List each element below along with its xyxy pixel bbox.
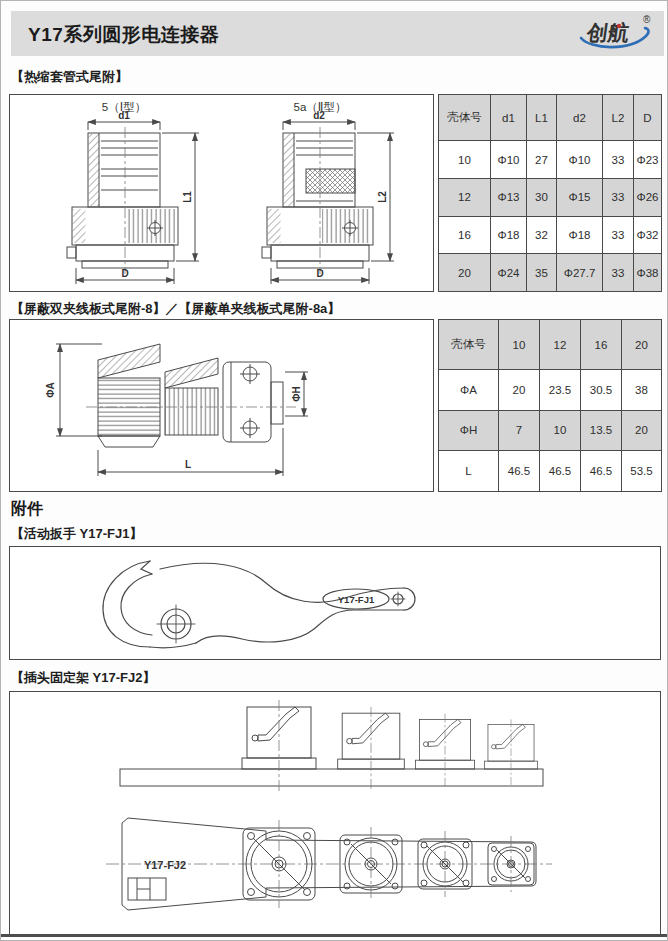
cell: 20: [622, 410, 662, 451]
datasheet-page: Y17系列圆形电连接器 创航 ® 【热缩套管式尾附】: [0, 0, 668, 941]
col-header: 壳体号: [439, 95, 491, 141]
connector-side-drawing: ΦA ΦH L: [10, 320, 433, 491]
dim-d-label-1: D: [121, 268, 128, 279]
section2-heading: 【屏蔽双夹线板式尾附-8】／【屏蔽单夹线板式尾附-8a】: [11, 300, 340, 318]
cell: 35: [527, 254, 557, 292]
cell: 46.5: [540, 451, 581, 492]
cell: 12: [439, 179, 491, 217]
page-title: Y17系列圆形电连接器: [28, 22, 219, 48]
cell: 30.5: [581, 370, 622, 411]
section2-row: ΦA ΦH L 壳体号 10 12 16 20 ΦA 20 23.5 30.5 …: [9, 319, 661, 492]
cell: 16: [439, 216, 491, 254]
connector-section-drawing: 5（Ⅰ型） 5a（Ⅱ型） d1 d2 L1 L2 D D: [10, 95, 433, 291]
cell: 38: [622, 370, 662, 411]
cell: 20: [439, 254, 491, 292]
section1-row: 5（Ⅰ型） 5a（Ⅱ型） d1 d2 L1 L2 D D 壳体号 d1 L1 d…: [9, 94, 661, 292]
section1-heading: 【热缩套管式尾附】: [11, 68, 128, 86]
cell: 16: [581, 320, 622, 370]
cell: 20: [622, 320, 662, 370]
cell: 33: [603, 141, 634, 179]
cell: 53.5: [622, 451, 662, 492]
brand-logo-icon: 创航 ®: [574, 11, 658, 57]
dim-l1-label: L1: [182, 191, 193, 203]
fixture-drawing-box: Y17-FJ2: [9, 691, 661, 935]
cell: 7: [499, 410, 540, 451]
col-header: L2: [603, 95, 634, 141]
table-row: 12 Φ13 30 Φ15 33 Φ26: [439, 179, 662, 217]
col-header: d2: [557, 95, 603, 141]
table-row: 壳体号 10 12 16 20: [439, 320, 662, 370]
cell: 12: [540, 320, 581, 370]
dim-l2-label: L2: [377, 191, 388, 203]
cell: 32: [527, 216, 557, 254]
shell-size-table: 壳体号 10 12 16 20 ΦA 20 23.5 30.5 38 ΦH 7 …: [438, 319, 662, 492]
dim-phia-label: ΦA: [45, 382, 56, 397]
wrench-part-label: Y17-FJ1: [338, 594, 375, 605]
cell: Φ24: [491, 254, 527, 292]
heatshrink-tail-drawing: 5（Ⅰ型） 5a（Ⅱ型） d1 d2 L1 L2 D D: [9, 94, 434, 292]
cell: 46.5: [581, 451, 622, 492]
table-row: L 46.5 46.5 46.5 53.5: [439, 451, 662, 492]
cell: 33: [603, 179, 634, 217]
cell: ΦA: [439, 370, 499, 411]
table-row: 20 Φ24 35 Φ27.7 33 Φ38: [439, 254, 662, 292]
accessories-heading: 附件: [11, 499, 43, 520]
cell: 27: [527, 141, 557, 179]
wrench-drawing-box: Y17-FJ1: [9, 546, 661, 660]
cell: Φ26: [634, 179, 662, 217]
heatshrink-dimension-table: 壳体号 d1 L1 d2 L2 D 10 Φ10 27 Φ10 33 Φ23 1…: [438, 94, 662, 292]
fixture-part-label: Y17-FJ2: [144, 859, 186, 871]
table-row: 10 Φ10 27 Φ10 33 Φ23: [439, 141, 662, 179]
col-header: D: [634, 95, 662, 141]
logo-red-dot: [617, 24, 621, 28]
fixture-heading: 【插头固定架 Y17-FJ2】: [11, 669, 155, 687]
plug-fixture-drawing: Y17-FJ2: [10, 692, 660, 934]
cell: Φ13: [491, 179, 527, 217]
col-header: d1: [491, 95, 527, 141]
table-row: ΦH 7 10 13.5 20: [439, 410, 662, 451]
cell: 30: [527, 179, 557, 217]
spanner-wrench-drawing: Y17-FJ1: [10, 547, 660, 659]
cell: 46.5: [499, 451, 540, 492]
cell: 10: [540, 410, 581, 451]
brand-logo: 创航 ®: [574, 11, 658, 61]
header-bar: Y17系列圆形电连接器 创航 ®: [11, 11, 664, 56]
dim-d2-label: d2: [313, 110, 325, 121]
cell: Φ23: [634, 141, 662, 179]
page-bottom-rule: [1, 934, 667, 937]
dim-l-label: L: [185, 459, 191, 470]
cell: Φ32: [634, 216, 662, 254]
col-header: L1: [527, 95, 557, 141]
dim-phih-label: ΦH: [291, 386, 302, 401]
cell: 33: [603, 216, 634, 254]
dim-d-label-2: D: [316, 268, 323, 279]
cell: 33: [603, 254, 634, 292]
cell: L: [439, 451, 499, 492]
cell: Φ10: [491, 141, 527, 179]
logo-text: 创航: [584, 21, 630, 44]
cell: Φ18: [557, 216, 603, 254]
cell: 20: [499, 370, 540, 411]
cell: 23.5: [540, 370, 581, 411]
wrench-heading: 【活动扳手 Y17-FJ1】: [11, 525, 142, 543]
cell: Φ27.7: [557, 254, 603, 292]
table-row: ΦA 20 23.5 30.5 38: [439, 370, 662, 411]
table-row: 16 Φ18 32 Φ18 33 Φ32: [439, 216, 662, 254]
cell: 10: [499, 320, 540, 370]
shield-clamp-tail-drawing: ΦA ΦH L: [9, 319, 434, 492]
cell: 13.5: [581, 410, 622, 451]
cell: 10: [439, 141, 491, 179]
table-header-row: 壳体号 d1 L1 d2 L2 D: [439, 95, 662, 141]
cell: Φ15: [557, 179, 603, 217]
cell: ΦH: [439, 410, 499, 451]
cell: 壳体号: [439, 320, 499, 370]
dim-d1-label: d1: [118, 110, 130, 121]
cell: Φ18: [491, 216, 527, 254]
cell: Φ38: [634, 254, 662, 292]
registered-mark: ®: [643, 14, 651, 25]
cell: Φ10: [557, 141, 603, 179]
